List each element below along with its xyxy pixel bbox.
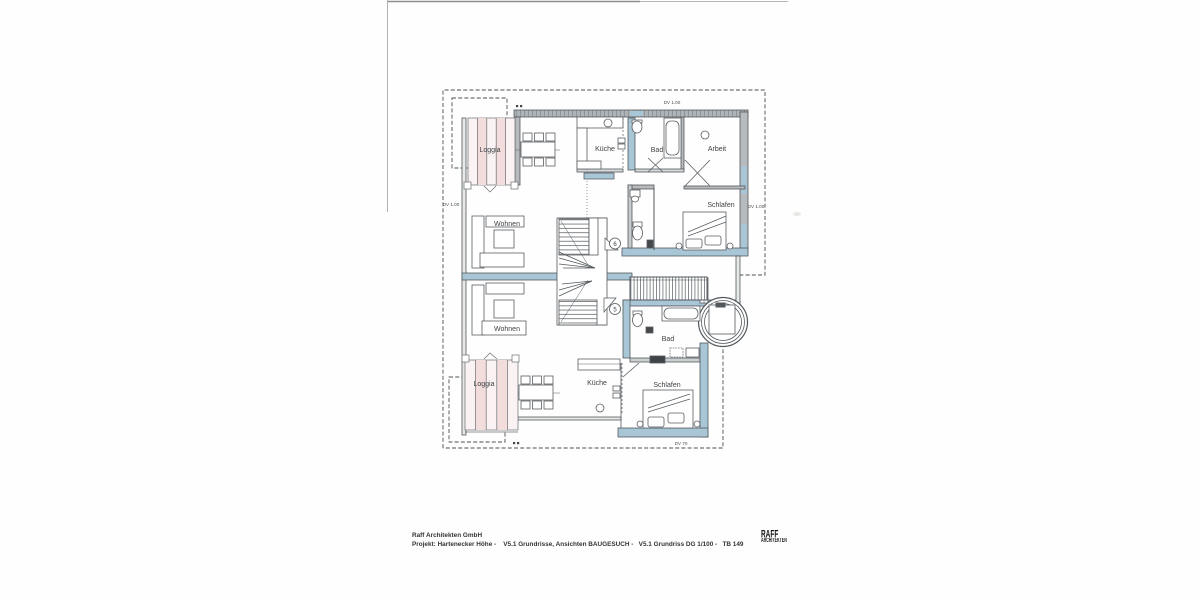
right-wall-lower-seg	[736, 256, 740, 303]
turret-furniture	[709, 305, 735, 334]
nightstand	[676, 243, 682, 249]
room-label-schlafen-upper: Schlafen	[707, 202, 734, 209]
pillow	[705, 236, 721, 245]
nightstand	[727, 243, 733, 249]
stair-flight-up	[559, 219, 589, 255]
logo-text-bottom: ARCHITEKTEN	[761, 538, 787, 545]
dim-dot	[516, 105, 518, 107]
loggia-post	[511, 182, 518, 189]
room-label-bad-upper: Bad	[651, 147, 664, 154]
coffee-table	[494, 230, 514, 248]
lower-loggia	[462, 353, 519, 444]
nightstand	[694, 421, 700, 427]
common-stair-band	[630, 277, 707, 300]
arbeit-room	[685, 131, 710, 186]
dim-label-bottom: DV 70	[675, 441, 688, 446]
project-line: Projekt: Hartenecker Höhe - V5.1 Grundri…	[412, 540, 743, 549]
dresser-dashed	[670, 348, 683, 357]
stair-flight-down	[559, 300, 597, 325]
toilet	[633, 226, 643, 240]
dim-dot	[520, 105, 522, 107]
bathtub-inner	[666, 121, 679, 155]
architect-logo: RAFF ARCHITEKTEN	[761, 529, 804, 545]
room-label-wohnen-upper: Wohnen	[494, 221, 520, 228]
turret-bay	[699, 298, 748, 347]
room-label-kueche-lower: Küche	[587, 380, 607, 387]
dresser	[686, 348, 699, 357]
loggia-side-wall	[515, 117, 520, 185]
dim-dot	[517, 442, 519, 444]
loggia-arrow	[484, 186, 496, 192]
loggia-post	[464, 182, 471, 189]
pillow	[668, 413, 684, 423]
sink	[632, 196, 639, 202]
kueche-lower-edge-wall	[577, 169, 623, 172]
dim-label-right: DV 1.00	[748, 204, 765, 209]
sink	[596, 404, 604, 412]
bedroom-lower	[623, 363, 700, 428]
top-wall-window	[630, 111, 643, 116]
loggia-post	[462, 355, 469, 362]
right-wall-window-1	[741, 166, 747, 194]
room-label-loggia-lower: Loggia	[473, 381, 494, 388]
room-label-kueche-upper: Küche	[595, 146, 615, 153]
door-swing	[623, 363, 639, 377]
room-label-wohnen-lower: Wohnen	[494, 326, 520, 333]
scanned-floor-plan-page: 6 5 Loggia	[0, 0, 1200, 600]
bedroom-upper	[676, 212, 733, 250]
dim-label-left: DV 1.00	[443, 202, 460, 207]
wc-upper	[630, 190, 653, 248]
dining-table-upper	[521, 133, 555, 166]
dining-table-lower	[519, 376, 553, 409]
paper-edge-lines	[388, 0, 802, 216]
dark-fixture	[716, 303, 725, 307]
kitchen-sill	[584, 173, 614, 179]
lower-bottom-wall	[618, 428, 708, 437]
company-name: Raff Architekten GmbH	[412, 531, 743, 540]
sink	[604, 119, 612, 127]
toilet	[633, 314, 643, 327]
room-label-arbeit: Arbeit	[708, 146, 726, 153]
lower-right-wall	[700, 343, 708, 437]
pillow	[686, 239, 702, 248]
right-wall-window-2	[741, 224, 747, 251]
nightstand	[637, 421, 643, 427]
sink	[632, 121, 642, 133]
stairwell	[557, 218, 607, 325]
room-label-bad-lower: Bad	[662, 336, 675, 343]
dark-fixture	[647, 240, 653, 248]
bathtub-inner	[664, 308, 698, 319]
dim-dot	[513, 442, 515, 444]
title-block: Raff Architekten GmbH Projekt: Harteneck…	[412, 531, 743, 549]
bathroom-upper	[632, 118, 681, 172]
coffee-table	[494, 300, 514, 318]
floor-plan-drawing: 6 5 Loggia	[0, 0, 1200, 600]
schlafen-top-wall	[684, 186, 745, 189]
pillow	[648, 417, 664, 427]
stair-shaft	[589, 218, 598, 255]
room-label-loggia-upper: Loggia	[479, 147, 500, 154]
bad-arbeit-wall	[681, 117, 684, 170]
room-label-schlafen-lower: Schlafen	[653, 382, 680, 389]
loggia-post	[512, 355, 519, 362]
bad-lower-edge-wall	[635, 169, 684, 172]
ceiling-lamp	[701, 131, 709, 139]
loggia-arrow	[484, 353, 497, 359]
dim-label-top: DV 1.00	[664, 100, 681, 105]
dark-fixture	[646, 327, 653, 333]
kueche-bottom-wall	[518, 417, 621, 420]
bathroom-lower	[633, 306, 701, 357]
bad-lower-left-wall	[623, 300, 630, 358]
scan-smudge	[793, 212, 801, 216]
door-threshold	[650, 356, 665, 363]
door-tag-upper: 6	[605, 238, 621, 250]
